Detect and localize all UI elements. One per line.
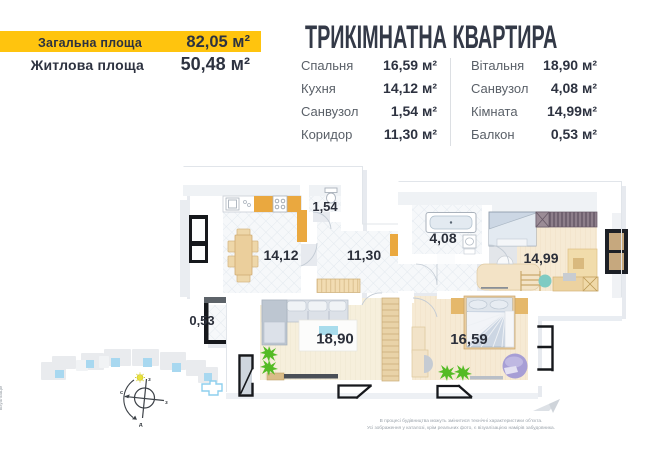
svg-text:16,59: 16,59	[450, 331, 488, 348]
svg-text:14,12: 14,12	[263, 247, 298, 263]
svg-text:14,99: 14,99	[523, 250, 558, 266]
svg-text:візуалізація: візуалізація	[0, 385, 3, 410]
svg-text:4,08: 4,08	[429, 230, 456, 246]
svg-text:1,54: 1,54	[312, 199, 338, 214]
svg-text:с: с	[120, 390, 123, 396]
svg-text:18,90: 18,90	[316, 331, 354, 348]
svg-text:д: д	[139, 422, 143, 428]
svg-text:11,30: 11,30	[347, 247, 381, 263]
svg-text:Усі зображення у каталозі, крі: Усі зображення у каталозі, крім реальних…	[367, 425, 555, 431]
svg-text:В процесі будівництва можуть з: В процесі будівництва можуть змінитися т…	[380, 418, 543, 424]
svg-text:з: з	[165, 400, 168, 406]
svg-text:0,53: 0,53	[189, 313, 214, 328]
svg-text:з: з	[148, 377, 151, 383]
